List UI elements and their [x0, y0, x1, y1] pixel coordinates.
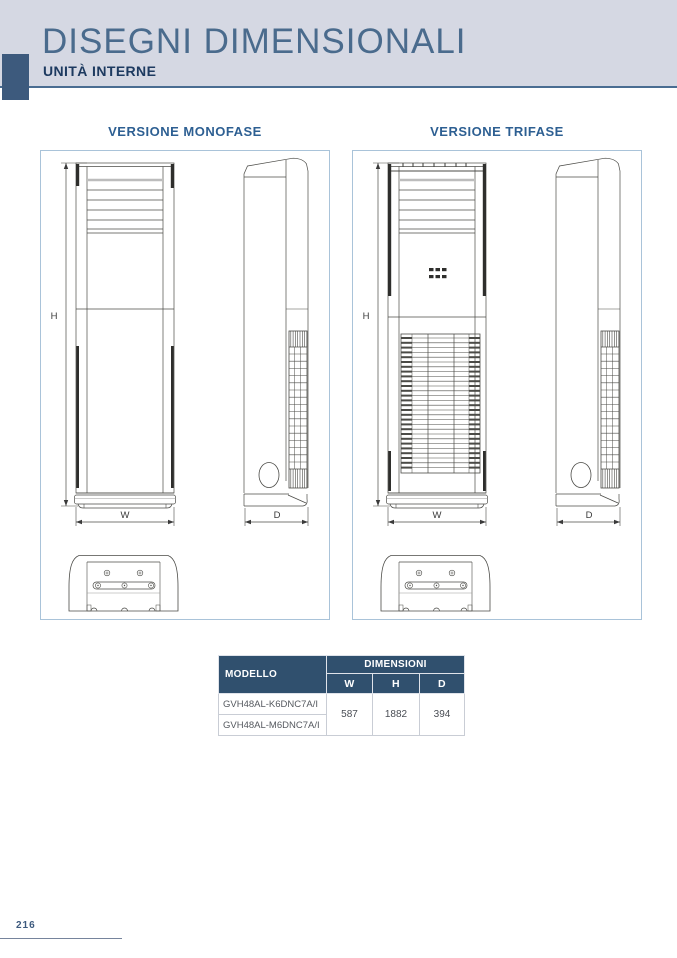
monofase-technical-drawing: WHD [41, 151, 329, 619]
svg-text:W: W [433, 510, 442, 521]
trifase-drawing-box: WHD [352, 150, 642, 620]
table-header-w: W [327, 674, 373, 694]
table-row: GVH48AL-K6DNC7A/I 587 1882 394 [219, 694, 465, 715]
svg-text:D: D [274, 510, 281, 521]
value-d: 394 [420, 694, 465, 736]
model-cell-2: GVH48AL-M6DNC7A/I [219, 715, 327, 736]
table-header-modello: MODELLO [219, 656, 327, 694]
value-h: 1882 [373, 694, 420, 736]
page-number: 216 [16, 920, 36, 931]
trifase-technical-drawing: WHD [353, 151, 641, 619]
svg-text:H: H [51, 311, 58, 322]
footer-rule [0, 938, 122, 939]
section-label-monofase: VERSIONE MONOFASE [40, 124, 330, 139]
header-accent-square [2, 54, 29, 100]
table-header-dimensioni: DIMENSIONI [327, 656, 465, 674]
table-header-d: D [420, 674, 465, 694]
model-cell-1: GVH48AL-K6DNC7A/I [219, 694, 327, 715]
svg-text:H: H [363, 311, 370, 322]
value-w: 587 [327, 694, 373, 736]
monofase-drawing-box: WHD [40, 150, 330, 620]
table-header-h: H [373, 674, 420, 694]
page-subtitle: UNITÀ INTERNE [43, 63, 156, 79]
section-label-trifase: VERSIONE TRIFASE [352, 124, 642, 139]
page-header: DISEGNI DIMENSIONALI UNITÀ INTERNE [0, 0, 677, 88]
page-title: DISEGNI DIMENSIONALI [42, 22, 467, 62]
svg-text:D: D [586, 510, 593, 521]
svg-text:W: W [121, 510, 130, 521]
dimensions-table: MODELLO DIMENSIONI W H D GVH48AL-K6DNC7A… [218, 655, 465, 736]
